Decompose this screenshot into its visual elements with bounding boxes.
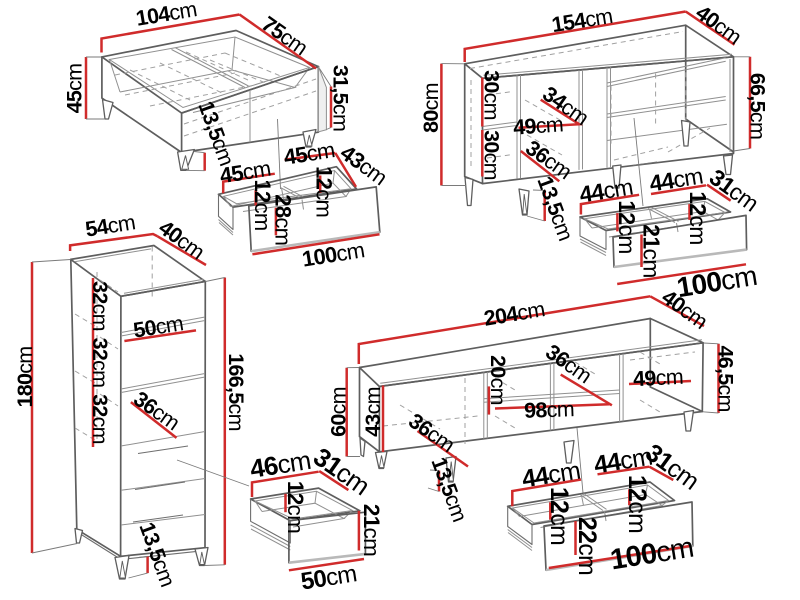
svg-text:80cm: 80cm (419, 83, 443, 133)
svg-text:45cm: 45cm (63, 64, 87, 114)
svg-text:60cm: 60cm (327, 387, 351, 437)
svg-text:46,5cm: 46,5cm (714, 345, 738, 411)
svg-text:30cm: 30cm (480, 130, 504, 180)
svg-text:98cm: 98cm (524, 397, 575, 423)
svg-text:12cm: 12cm (312, 166, 337, 217)
svg-text:28cm: 28cm (270, 194, 295, 245)
svg-text:12cm: 12cm (283, 481, 308, 533)
svg-text:21cm: 21cm (639, 224, 665, 277)
svg-text:22cm: 22cm (573, 517, 601, 575)
svg-text:32cm: 32cm (88, 281, 112, 331)
svg-text:166,5cm: 166,5cm (224, 353, 248, 431)
svg-text:49cm: 49cm (512, 112, 563, 139)
svg-text:180cm: 180cm (13, 346, 37, 407)
svg-text:12cm: 12cm (685, 191, 711, 244)
svg-text:20cm: 20cm (486, 355, 510, 405)
svg-text:12cm: 12cm (623, 475, 651, 533)
svg-text:32cm: 32cm (88, 338, 112, 388)
svg-text:12cm: 12cm (614, 200, 640, 253)
svg-text:30cm: 30cm (480, 70, 504, 120)
svg-text:49cm: 49cm (633, 365, 684, 392)
svg-text:12cm: 12cm (545, 487, 573, 545)
svg-text:31,5cm: 31,5cm (329, 65, 353, 131)
svg-text:43cm: 43cm (361, 387, 385, 437)
svg-text:32cm: 32cm (88, 394, 112, 444)
svg-text:66,5cm: 66,5cm (746, 73, 770, 139)
svg-text:21cm: 21cm (359, 504, 384, 556)
